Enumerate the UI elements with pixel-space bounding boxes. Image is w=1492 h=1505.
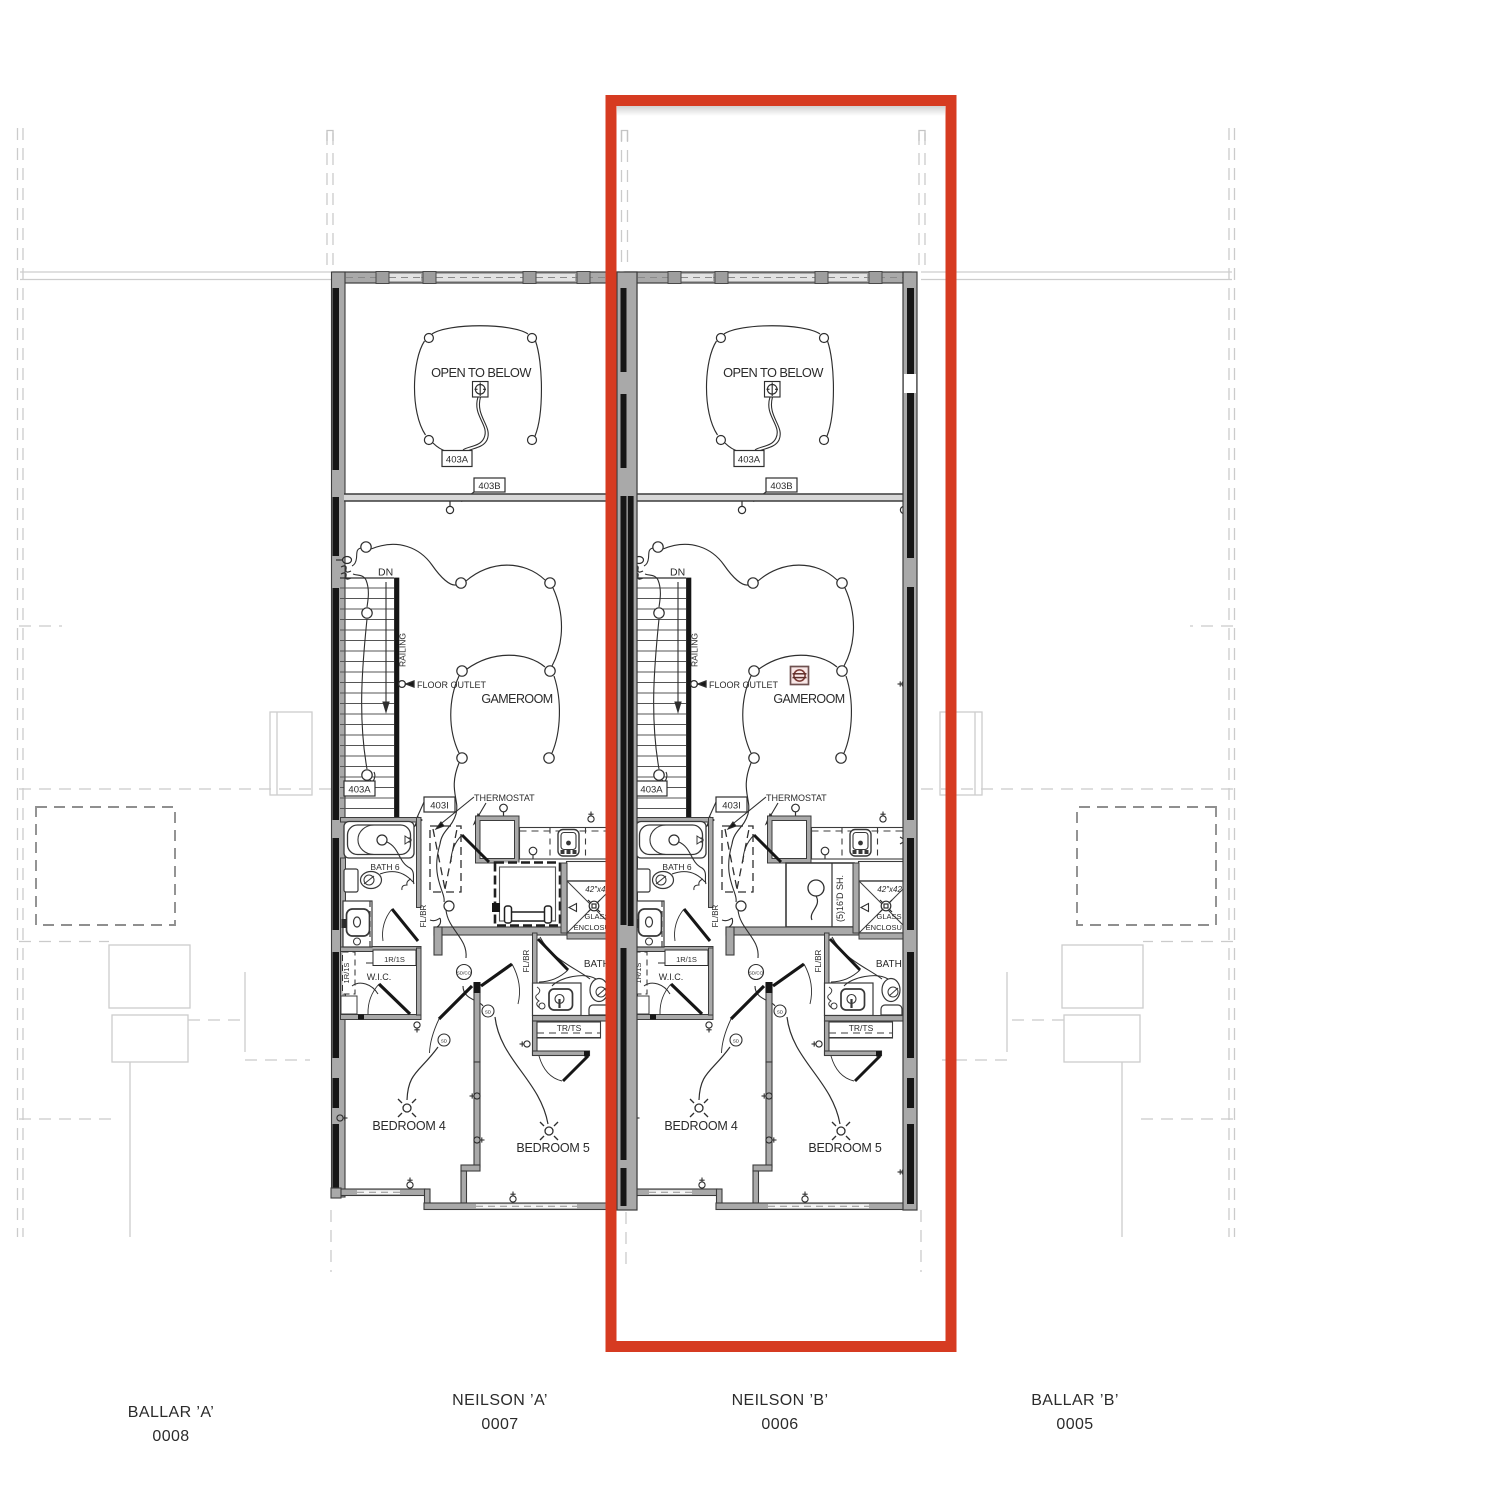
svg-text:THERMOSTAT: THERMOSTAT (474, 793, 535, 803)
svg-text:403A: 403A (446, 455, 469, 466)
svg-text:NEILSON ’A’: NEILSON ’A’ (452, 1392, 548, 1409)
svg-text:SD: SD (485, 1010, 492, 1015)
svg-text:BATH 6: BATH 6 (662, 862, 691, 872)
svg-text:FL/BR: FL/BR (522, 949, 531, 972)
svg-text:SD/CO: SD/CO (749, 971, 764, 976)
svg-text:W.I.C.: W.I.C. (659, 972, 684, 982)
svg-text:SD: SD (441, 1039, 448, 1044)
svg-text:BEDROOM 4: BEDROOM 4 (664, 1119, 737, 1133)
svg-text:OPEN TO BELOW: OPEN TO BELOW (723, 365, 824, 380)
svg-text:BALLAR ’B’: BALLAR ’B’ (1031, 1392, 1119, 1409)
svg-text:(5)16’D SH.: (5)16’D SH. (835, 875, 845, 922)
svg-text:GAMEROOM: GAMEROOM (773, 692, 844, 706)
svg-text:403A: 403A (640, 785, 663, 796)
svg-text:1R/1S: 1R/1S (342, 963, 351, 984)
svg-text:RAILING: RAILING (690, 633, 700, 667)
svg-text:FL/BR: FL/BR (814, 949, 823, 972)
svg-text:TR/TS: TR/TS (849, 1023, 874, 1033)
svg-text:DN: DN (670, 567, 685, 579)
svg-text:1R/1S: 1R/1S (384, 955, 405, 964)
svg-text:SD/CO: SD/CO (457, 971, 472, 976)
svg-text:403I: 403I (722, 801, 741, 812)
svg-text:0005: 0005 (1056, 1416, 1093, 1433)
svg-text:NEILSON ’B’: NEILSON ’B’ (732, 1392, 829, 1409)
svg-text:403B: 403B (478, 481, 500, 492)
svg-text:403A: 403A (348, 785, 371, 796)
svg-text:SD: SD (777, 1010, 784, 1015)
svg-text:42″x42″: 42″x42″ (877, 885, 906, 894)
svg-text:SD: SD (733, 1039, 740, 1044)
svg-text:THERMOSTAT: THERMOSTAT (766, 793, 827, 803)
svg-text:403I: 403I (430, 801, 449, 812)
svg-text:0006: 0006 (761, 1416, 798, 1433)
svg-text:BEDROOM 5: BEDROOM 5 (808, 1141, 881, 1155)
svg-text:403A: 403A (738, 455, 761, 466)
svg-text:FLOOR OUTLET: FLOOR OUTLET (709, 680, 779, 690)
svg-text:403B: 403B (770, 481, 792, 492)
svg-text:W.I.C.: W.I.C. (367, 972, 392, 982)
svg-text:GAMEROOM: GAMEROOM (481, 692, 552, 706)
svg-text:FLOOR OUTLET: FLOOR OUTLET (417, 680, 487, 690)
svg-text:FL/BR: FL/BR (419, 904, 428, 927)
svg-text:BEDROOM 5: BEDROOM 5 (516, 1141, 589, 1155)
svg-text:FL/BR: FL/BR (711, 904, 720, 927)
svg-text:DN: DN (378, 567, 393, 579)
svg-text:RAILING: RAILING (398, 633, 408, 667)
svg-text:BATH 6: BATH 6 (370, 862, 399, 872)
svg-text:BEDROOM 4: BEDROOM 4 (372, 1119, 445, 1133)
svg-text:0008: 0008 (152, 1428, 189, 1445)
svg-text:BALLAR ’A’: BALLAR ’A’ (128, 1404, 214, 1421)
svg-text:TR/TS: TR/TS (557, 1023, 582, 1033)
svg-text:1R/1S: 1R/1S (676, 955, 697, 964)
svg-text:0007: 0007 (481, 1416, 518, 1433)
svg-text:GLASS: GLASS (876, 912, 901, 921)
svg-text:OPEN TO BELOW: OPEN TO BELOW (431, 365, 532, 380)
